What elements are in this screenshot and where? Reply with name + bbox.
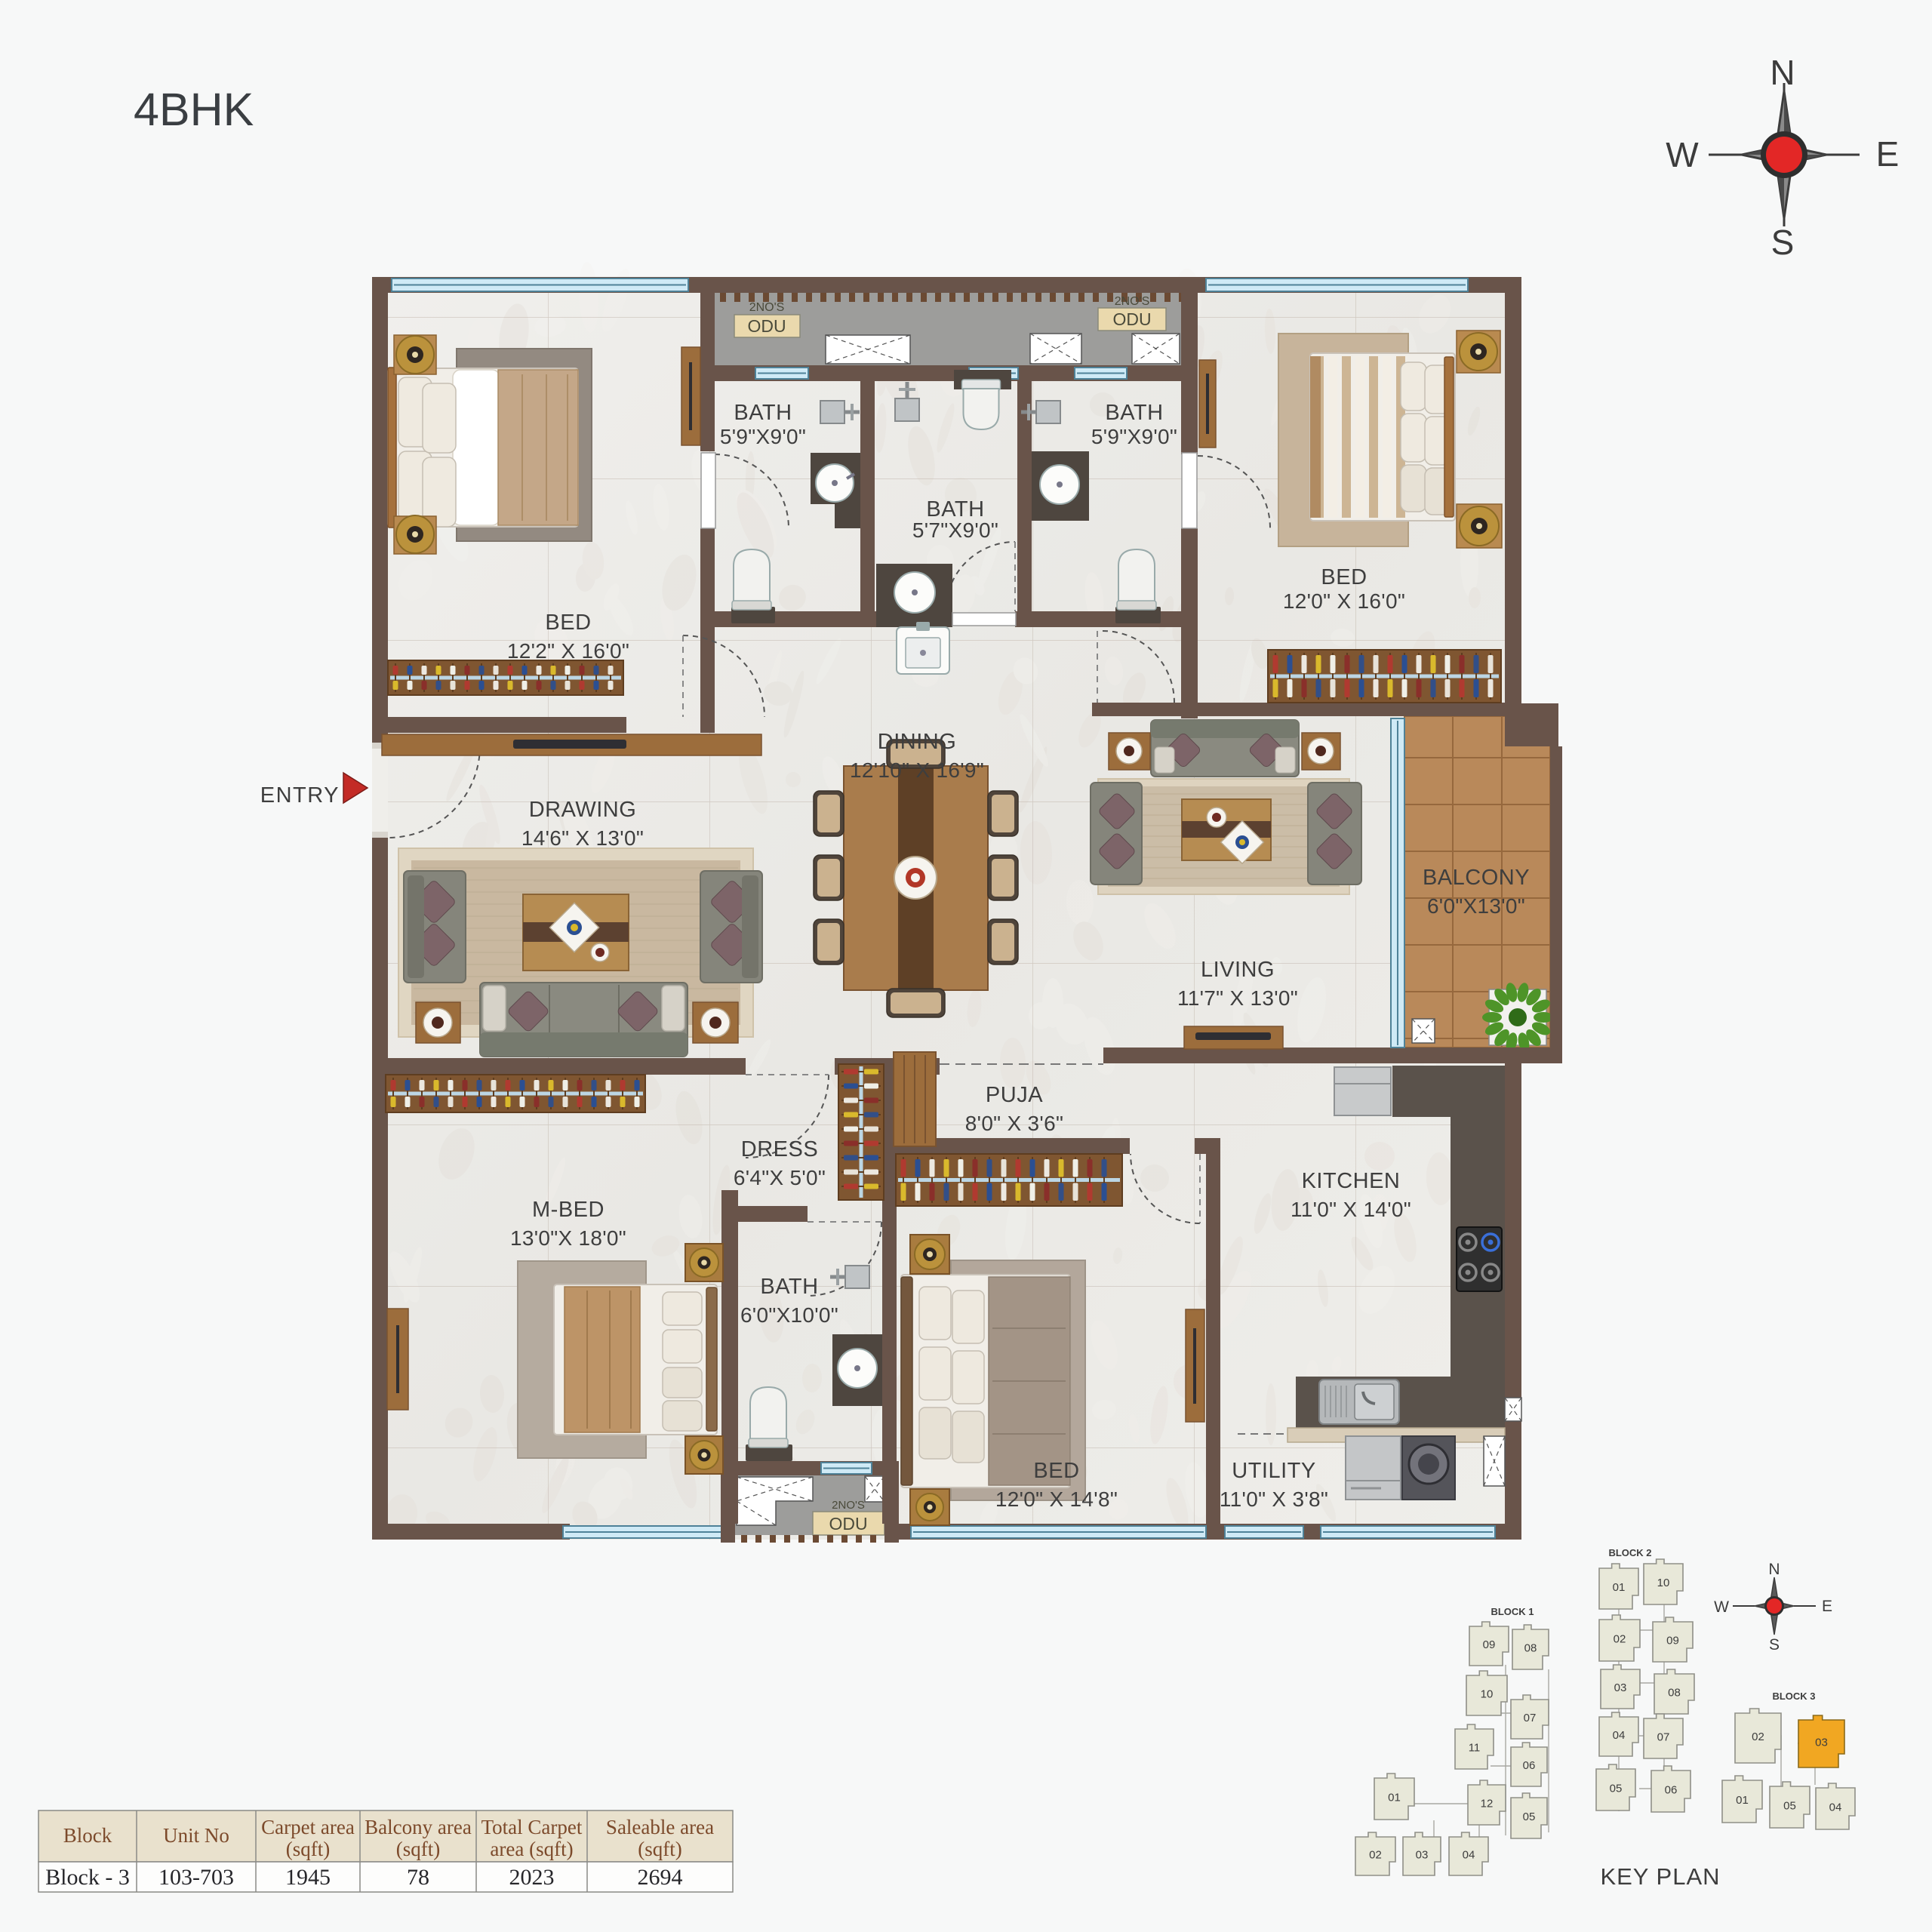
svg-text:09: 09 [1483, 1638, 1496, 1651]
svg-text:Total Carpet: Total Carpet [481, 1816, 583, 1838]
svg-text:BED: BED [1321, 565, 1367, 589]
svg-text:BED: BED [1033, 1459, 1079, 1483]
svg-text:2NO'S: 2NO'S [749, 301, 785, 314]
svg-text:08: 08 [1668, 1687, 1681, 1700]
svg-text:12'10" X 16'9": 12'10" X 16'9" [850, 758, 984, 782]
svg-text:03: 03 [1416, 1849, 1429, 1862]
svg-text:01: 01 [1388, 1792, 1401, 1804]
svg-text:BLOCK 3: BLOCK 3 [1772, 1690, 1815, 1702]
svg-text:01: 01 [1736, 1794, 1749, 1807]
svg-text:(sqft): (sqft) [638, 1838, 681, 1860]
svg-text:02: 02 [1752, 1730, 1764, 1743]
svg-text:BED: BED [545, 611, 591, 635]
svg-text:12'0" X 14'8": 12'0" X 14'8" [995, 1487, 1118, 1511]
svg-text:UTILITY: UTILITY [1232, 1459, 1315, 1483]
svg-text:8'0" X 3'6": 8'0" X 3'6" [965, 1112, 1063, 1135]
svg-text:Carpet area: Carpet area [261, 1816, 355, 1838]
svg-text:12'0" X 16'0": 12'0" X 16'0" [1283, 589, 1405, 613]
svg-text:Block: Block [63, 1824, 112, 1847]
svg-text:BLOCK 1: BLOCK 1 [1491, 1606, 1534, 1617]
svg-text:1945: 1945 [285, 1865, 331, 1890]
svg-text:11'7" X 13'0": 11'7" X 13'0" [1177, 986, 1298, 1010]
svg-text:5'7"X9'0": 5'7"X9'0" [912, 518, 998, 542]
svg-text:13'0"X 18'0": 13'0"X 18'0" [510, 1226, 626, 1250]
svg-text:BATH: BATH [760, 1275, 818, 1299]
svg-text:DRESS: DRESS [741, 1137, 818, 1161]
svg-text:LIVING: LIVING [1201, 958, 1275, 982]
svg-text:02: 02 [1369, 1849, 1382, 1862]
svg-text:S: S [1771, 223, 1795, 262]
svg-text:(sqft): (sqft) [286, 1838, 330, 1860]
svg-text:11: 11 [1469, 1742, 1481, 1755]
svg-text:11'0" X 14'0": 11'0" X 14'0" [1291, 1198, 1411, 1221]
svg-text:04: 04 [1613, 1729, 1626, 1742]
svg-text:2694: 2694 [638, 1865, 683, 1890]
svg-text:BLOCK 2: BLOCK 2 [1608, 1547, 1651, 1558]
svg-text:ODU: ODU [829, 1514, 867, 1534]
svg-text:BATH: BATH [1105, 401, 1163, 425]
svg-text:14'6" X 13'0": 14'6" X 13'0" [521, 826, 644, 850]
svg-text:6'0"X13'0": 6'0"X13'0" [1427, 894, 1525, 918]
svg-text:ODU: ODU [747, 316, 786, 336]
svg-text:W: W [1666, 135, 1699, 174]
svg-text:4BHK: 4BHK [134, 84, 254, 135]
svg-text:KEY PLAN: KEY PLAN [1600, 1863, 1720, 1890]
svg-text:07: 07 [1524, 1712, 1537, 1724]
svg-text:DINING: DINING [878, 730, 957, 754]
svg-text:S: S [1769, 1636, 1780, 1654]
svg-text:05: 05 [1610, 1783, 1623, 1795]
svg-text:ENTRY: ENTRY [260, 783, 340, 808]
svg-text:05: 05 [1523, 1810, 1536, 1823]
svg-text:07: 07 [1657, 1731, 1670, 1744]
svg-text:2NO'S: 2NO'S [1115, 295, 1150, 308]
svg-text:6'4"X 5'0": 6'4"X 5'0" [734, 1166, 826, 1189]
svg-text:08: 08 [1524, 1642, 1537, 1655]
svg-text:(sqft): (sqft) [396, 1838, 440, 1860]
svg-text:Balcony area: Balcony area [365, 1816, 472, 1838]
svg-text:09: 09 [1666, 1635, 1679, 1647]
svg-text:W: W [1714, 1598, 1729, 1616]
svg-text:103-703: 103-703 [158, 1865, 234, 1890]
svg-text:12: 12 [1481, 1798, 1494, 1810]
svg-text:area (sqft): area (sqft) [490, 1838, 573, 1860]
svg-text:78: 78 [407, 1865, 429, 1890]
svg-text:12'2" X 16'0": 12'2" X 16'0" [507, 639, 629, 663]
svg-text:06: 06 [1523, 1759, 1536, 1772]
svg-text:PUJA: PUJA [986, 1083, 1043, 1107]
svg-text:10: 10 [1657, 1577, 1670, 1589]
svg-text:05: 05 [1783, 1800, 1796, 1813]
svg-text:04: 04 [1829, 1801, 1842, 1814]
svg-text:Unit No: Unit No [163, 1824, 229, 1847]
svg-text:KITCHEN: KITCHEN [1302, 1169, 1401, 1193]
svg-text:11'0" X 3'8": 11'0" X 3'8" [1220, 1487, 1328, 1511]
svg-text:DRAWING: DRAWING [529, 798, 637, 822]
svg-text:03: 03 [1815, 1737, 1828, 1749]
svg-text:04: 04 [1463, 1849, 1475, 1862]
svg-text:E: E [1822, 1598, 1832, 1615]
svg-text:2023: 2023 [509, 1865, 555, 1890]
svg-text:E: E [1876, 134, 1900, 174]
svg-text:Block - 3: Block - 3 [45, 1865, 130, 1890]
svg-text:Saleable area: Saleable area [606, 1816, 714, 1838]
svg-text:5'9"X9'0": 5'9"X9'0" [1091, 425, 1177, 448]
svg-text:5'9"X9'0": 5'9"X9'0" [720, 425, 806, 448]
svg-text:ODU: ODU [1112, 309, 1151, 329]
svg-text:6'0"X10'0": 6'0"X10'0" [740, 1303, 838, 1327]
svg-text:06: 06 [1665, 1784, 1678, 1797]
svg-text:N: N [1770, 53, 1795, 92]
svg-text:BALCONY: BALCONY [1423, 866, 1530, 890]
svg-text:M-BED: M-BED [532, 1198, 605, 1222]
svg-text:2NO'S: 2NO'S [832, 1499, 865, 1512]
svg-text:10: 10 [1481, 1688, 1494, 1701]
svg-text:01: 01 [1613, 1581, 1626, 1594]
svg-text:BATH: BATH [734, 401, 792, 425]
svg-text:02: 02 [1614, 1633, 1626, 1646]
svg-text:03: 03 [1614, 1681, 1627, 1694]
svg-text:N: N [1768, 1561, 1780, 1578]
